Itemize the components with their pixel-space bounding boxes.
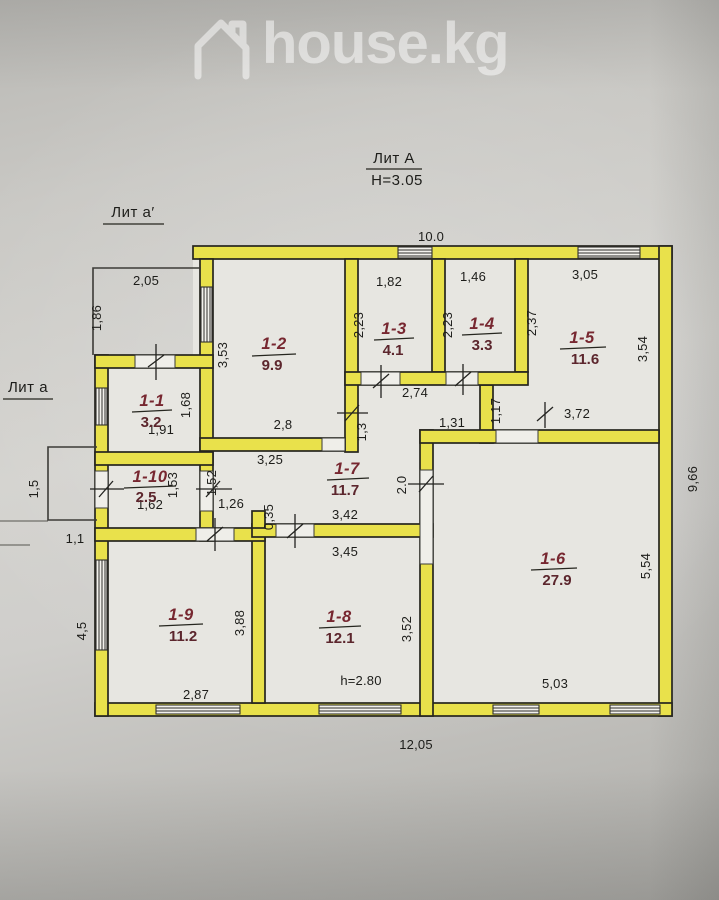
wall-room9-top <box>95 528 265 541</box>
dim-label: 1,17 <box>488 398 503 424</box>
dim-total-width-top: 10.0 <box>418 229 444 244</box>
window-porch-room2 <box>201 287 212 342</box>
dim-ceiling-height: h=2.80 <box>340 673 381 688</box>
floor-plan-drawing: house.kg Лит А Н=3.05 Лит а′ Лит а <box>0 0 719 900</box>
dim-label: 5,54 <box>638 553 653 579</box>
dim-label: 3,05 <box>572 267 598 282</box>
room-number: 1-8 <box>326 608 352 626</box>
window-top-1 <box>398 247 432 258</box>
door-room5 <box>496 430 538 443</box>
dim-label: 2,8 <box>274 417 293 432</box>
dim-label: 5,03 <box>542 676 568 691</box>
dim-label: 1,82 <box>376 274 402 289</box>
watermark-text: house.kg <box>262 11 509 76</box>
dim-label: 1,68 <box>178 392 193 418</box>
room-number: 1-2 <box>261 335 286 353</box>
room-area: 11.6 <box>571 351 599 368</box>
room-number: 1-1 <box>139 392 164 410</box>
window-bottom-2 <box>319 705 401 714</box>
room-number: 1-7 <box>334 460 360 478</box>
room-number: 1-5 <box>569 329 595 347</box>
wall-room9-vs-8 <box>252 528 265 703</box>
dim-label: 0,35 <box>261 504 276 530</box>
dim-label: 2,87 <box>183 687 209 702</box>
porch-left-outline <box>48 447 97 520</box>
dim-label: 1,3 <box>354 423 369 442</box>
dim-label: 1,52 <box>204 470 219 496</box>
dim-label: 3,52 <box>399 616 414 642</box>
dim-label: 3,42 <box>332 507 358 522</box>
window-left-room1 <box>96 388 107 425</box>
dim-label: 1,86 <box>89 305 104 331</box>
dim-label: 1,1 <box>66 531 85 546</box>
dim-label: 2,74 <box>402 385 428 400</box>
dim-label: 3,45 <box>332 544 358 559</box>
watermark: house.kg <box>198 11 509 76</box>
house-icon <box>198 23 246 76</box>
wall-right <box>659 246 672 716</box>
dim-total-width-bottom: 12,05 <box>399 737 433 752</box>
dim-label: 3,88 <box>232 610 247 636</box>
annex-left-label: Лит а <box>8 379 48 396</box>
dim-label: 2,23 <box>440 312 455 338</box>
room-number: 1-4 <box>469 315 494 333</box>
room-number: 1-10 <box>132 468 167 486</box>
door-room4 <box>446 372 478 385</box>
room-area: 9.9 <box>262 357 283 374</box>
room-area: 27.9 <box>542 572 571 589</box>
dim-label: 2,23 <box>351 312 366 338</box>
room-area: 2.5 <box>136 489 157 506</box>
dim-label: 2,05 <box>133 273 159 288</box>
room-area: 11.2 <box>169 628 197 645</box>
photo-of-floor-plan: house.kg Лит А Н=3.05 Лит а′ Лит а <box>0 0 719 900</box>
dim-label: 3,54 <box>635 336 650 362</box>
room-area: 3.2 <box>141 414 162 431</box>
wall-room5-bottom <box>420 430 659 443</box>
dim-label: 4,5 <box>74 622 89 641</box>
room-number: 1-6 <box>540 550 566 568</box>
window-top-2 <box>578 247 640 258</box>
room-number: 1-3 <box>381 320 406 338</box>
window-bottom-3 <box>493 705 539 714</box>
dim-label: 3,25 <box>257 452 283 467</box>
dim-label: 2,37 <box>524 310 539 336</box>
room-number: 1-9 <box>168 606 194 624</box>
building-height-label: Н=3.05 <box>371 172 423 189</box>
dim-label: 1,46 <box>460 269 486 284</box>
building-label: Лит А <box>373 150 415 167</box>
door-room2 <box>322 438 345 451</box>
window-left-room9 <box>96 560 107 650</box>
room-area: 3.3 <box>472 337 493 354</box>
window-bottom-4 <box>610 705 660 714</box>
annex-top-label: Лит а′ <box>111 204 154 221</box>
dim-label: 3,53 <box>215 342 230 368</box>
dim-label: 2.0 <box>394 476 409 495</box>
window-bottom-1 <box>156 705 240 714</box>
room-area: 4.1 <box>383 342 404 359</box>
dim-label: 1,31 <box>439 415 465 430</box>
room-area: 11.7 <box>331 482 359 499</box>
room-area: 12.1 <box>325 630 354 647</box>
dim-label: 1,5 <box>26 480 41 499</box>
dim-label: 3,72 <box>564 406 590 421</box>
dim-label: 1,26 <box>218 496 244 511</box>
dim-total-height-right: 9,66 <box>685 466 700 492</box>
wall-room1-bottom <box>95 452 213 465</box>
